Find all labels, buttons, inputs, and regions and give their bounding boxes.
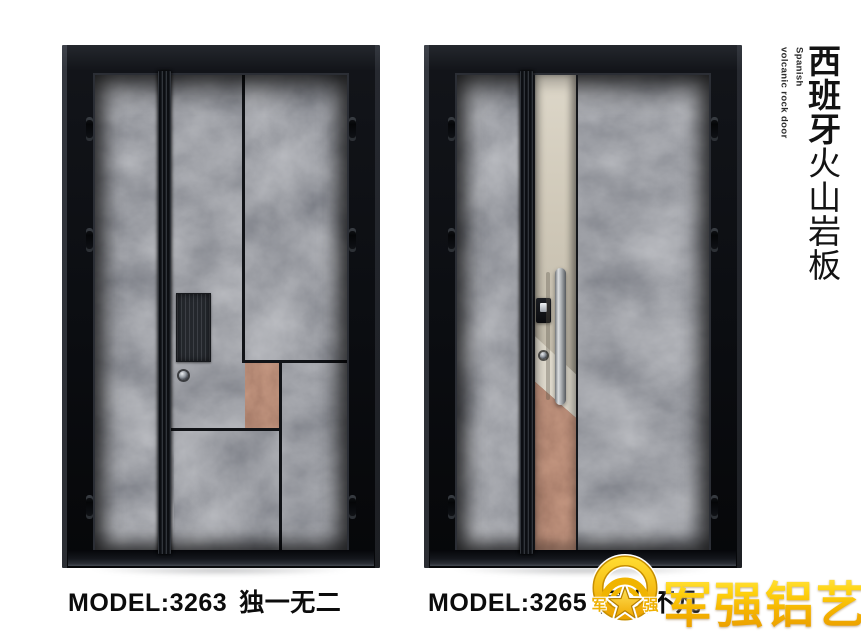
side-subtitle-en: Spanish volcanic rock door — [776, 47, 805, 139]
side-title-bold: 西班牙 — [804, 44, 841, 146]
side-subtitle-line2: volcanic rock door — [776, 47, 791, 139]
hinge — [349, 495, 356, 519]
keyhole — [179, 371, 188, 380]
hinge — [349, 228, 356, 252]
door-figure-1 — [62, 45, 380, 568]
door-sill — [430, 550, 736, 566]
handle-bar — [520, 71, 533, 554]
hinge — [711, 495, 718, 519]
brand-emblem-icon: 军 强 — [586, 552, 664, 630]
panel-seam — [242, 75, 245, 363]
rock-panel — [575, 75, 709, 550]
rock-panel — [174, 431, 279, 550]
model-name: 独一无二 — [239, 589, 341, 617]
hinge — [448, 228, 455, 252]
door-sill — [68, 550, 374, 566]
grain-plaque — [176, 293, 211, 362]
hinge — [711, 228, 718, 252]
door-slab — [95, 75, 347, 550]
rust-inlay — [245, 363, 279, 428]
hinge — [448, 495, 455, 519]
handle-reflection — [546, 272, 550, 400]
hinge — [86, 228, 93, 252]
hinge — [349, 117, 356, 141]
model-number: MODEL:3265 — [428, 589, 587, 617]
panel-seam — [279, 362, 282, 550]
side-title-regular: 火山岩板 — [804, 146, 841, 282]
door-slab — [457, 75, 709, 550]
keyhole — [540, 352, 547, 359]
hinge — [711, 117, 718, 141]
side-title-cn: 西班牙火山岩板 — [804, 44, 839, 282]
brand-wordmark: 军强铝艺 — [663, 566, 861, 632]
hinge — [86, 495, 93, 519]
emblem-char-right: 强 — [643, 596, 658, 614]
poster-stage: Spanish volcanic rock door 西班牙火山岩板 MODEL… — [0, 0, 861, 632]
floor-shadow — [60, 568, 382, 578]
pull-handle — [555, 268, 566, 405]
model-label-1: MODEL:3263独一无二 — [68, 583, 341, 619]
hinge — [448, 117, 455, 141]
rock-panel — [245, 75, 347, 360]
panel-seam — [171, 428, 282, 431]
handle-bar — [158, 71, 171, 554]
door-figure-2 — [424, 45, 742, 568]
model-number: MODEL:3263 — [68, 589, 227, 617]
emblem-char-left: 军 — [591, 596, 606, 614]
hinge — [86, 117, 93, 141]
